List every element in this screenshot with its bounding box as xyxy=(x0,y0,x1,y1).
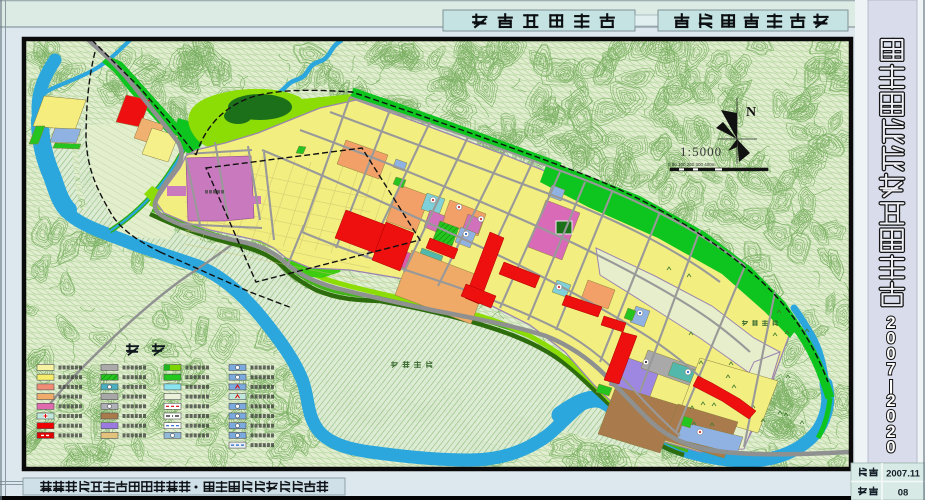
svg-text:7: 7 xyxy=(886,361,895,379)
svg-text:2007.11: 2007.11 xyxy=(886,469,921,480)
svg-text:0: 0 xyxy=(886,439,895,457)
svg-text:08: 08 xyxy=(898,488,909,499)
svg-text:N: N xyxy=(746,105,756,120)
svg-text:0 50 100 200 300: 0 50 100 200 300 400m xyxy=(668,162,716,167)
svg-text:1:5000: 1:5000 xyxy=(680,144,722,159)
